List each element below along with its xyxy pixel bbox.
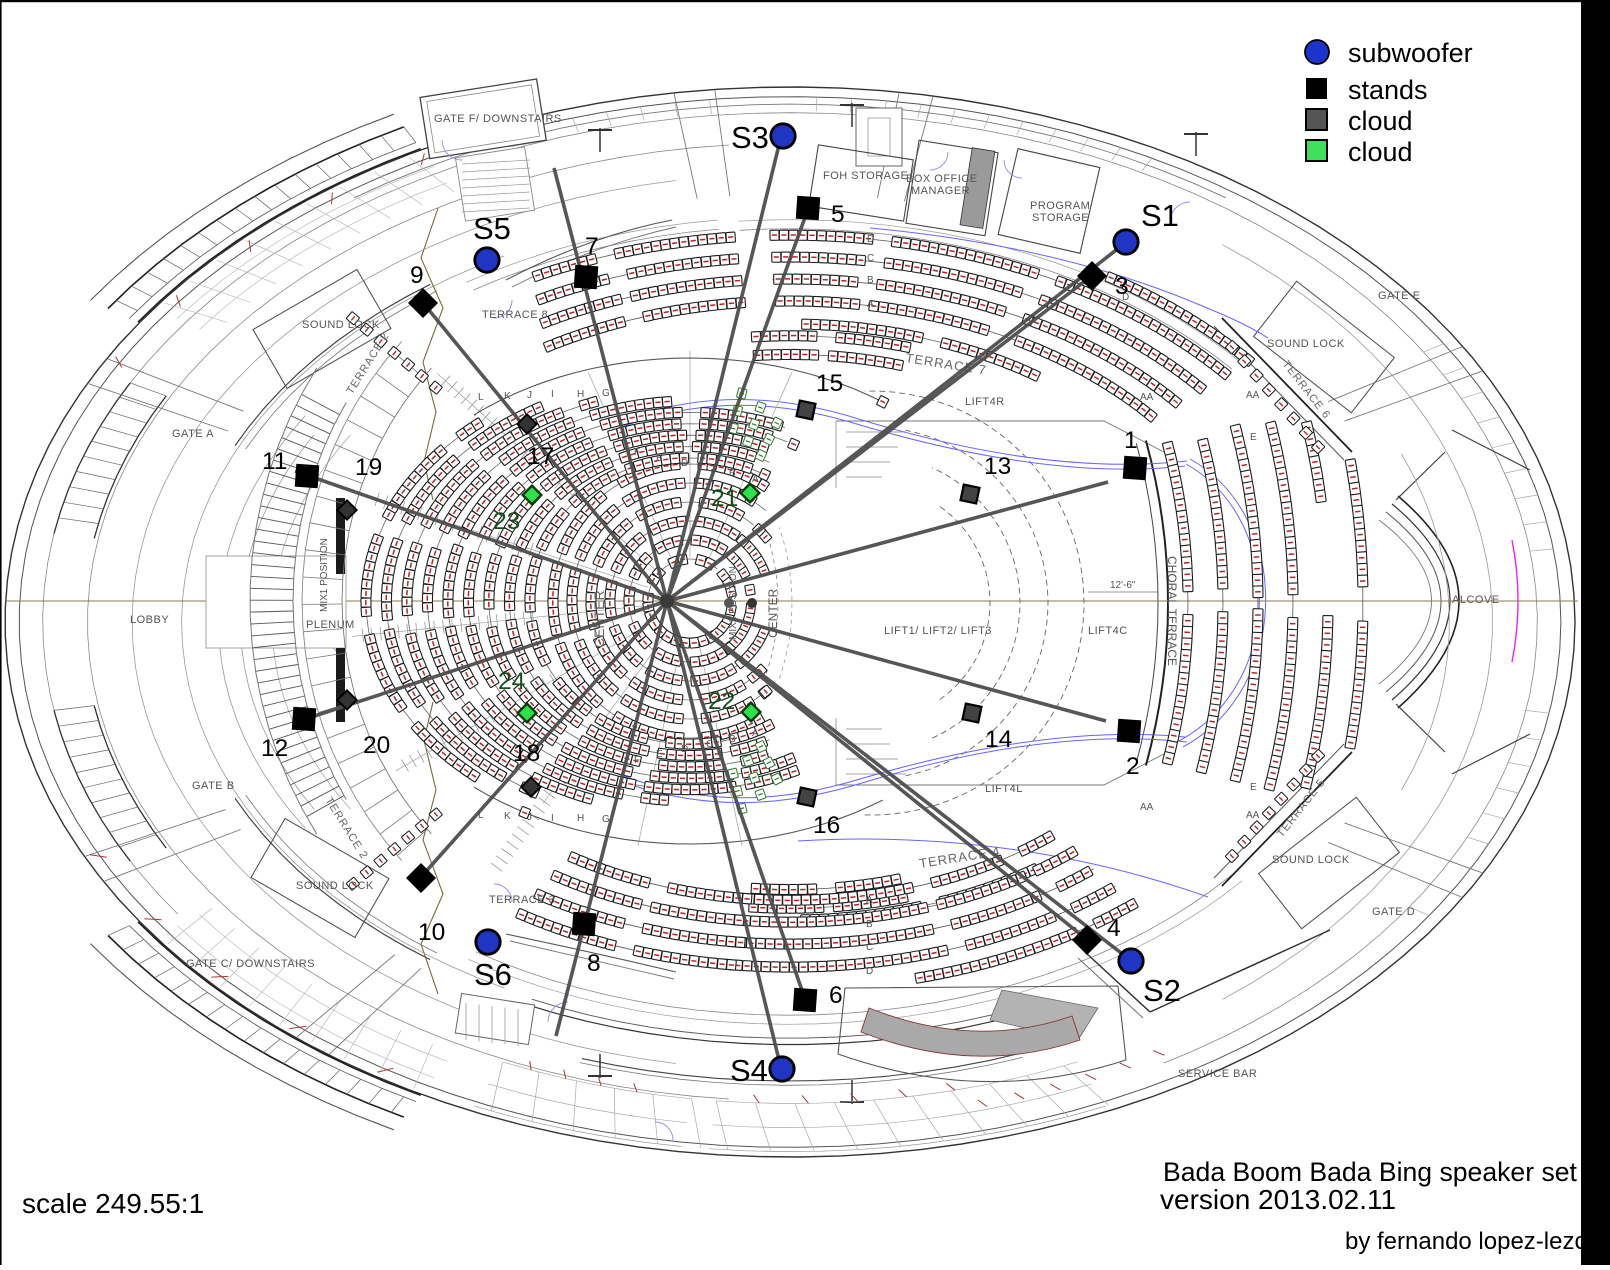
svg-text:10: 10 (418, 919, 445, 946)
svg-text:4: 4 (1107, 915, 1121, 942)
svg-text:C: C (866, 942, 873, 953)
svg-text:S6: S6 (474, 957, 512, 992)
svg-text:SERVICE BAR: SERVICE BAR (1178, 1068, 1257, 1080)
svg-text:G: G (602, 388, 610, 399)
svg-text:GATE C/ DOWNSTAIRS: GATE C/ DOWNSTAIRS (186, 958, 315, 970)
svg-text:S3: S3 (731, 120, 769, 155)
svg-text:version 2013.02.11: version 2013.02.11 (1160, 1184, 1396, 1215)
svg-text:CENTER: CENTER (591, 590, 607, 648)
svg-text:GATE B: GATE B (192, 780, 235, 792)
svg-text:LIFT4R: LIFT4R (965, 396, 1005, 408)
svg-text:13: 13 (984, 453, 1011, 480)
svg-text:TERRACE 8: TERRACE 8 (482, 309, 548, 321)
svg-text:B: B (866, 919, 873, 930)
svg-text:12: 12 (261, 735, 288, 762)
svg-text:D: D (866, 966, 873, 977)
svg-text:F: F (634, 755, 640, 766)
svg-text:24: 24 (498, 668, 525, 695)
svg-text:E: E (656, 749, 663, 760)
svg-text:FOH STORAGE: FOH STORAGE (823, 170, 908, 182)
svg-text:LIFT1/ LIFT2/ LIFT3: LIFT1/ LIFT2/ LIFT3 (884, 625, 992, 637)
svg-text:SOUND LOCK: SOUND LOCK (302, 319, 380, 331)
svg-text:SOUND LOCK: SOUND LOCK (1267, 338, 1345, 350)
svg-text:D: D (681, 458, 688, 469)
svg-text:J: J (527, 812, 532, 823)
svg-text:LIFT4L: LIFT4L (985, 783, 1023, 795)
svg-text:stands: stands (1348, 75, 1428, 105)
svg-text:22: 22 (708, 688, 735, 715)
svg-text:C: C (706, 739, 713, 750)
svg-text:PLENUM: PLENUM (306, 619, 355, 631)
svg-text:A: A (866, 895, 873, 906)
svg-text:18: 18 (513, 740, 540, 767)
svg-text:AA: AA (1140, 802, 1154, 813)
svg-text:J: J (527, 390, 532, 401)
svg-text:Bada Boom Bada Bing speaker se: Bada Boom Bada Bing speaker set (1163, 1157, 1578, 1187)
svg-text:ALCOVE: ALCOVE (1452, 594, 1500, 606)
svg-text:14: 14 (985, 726, 1012, 753)
svg-text:cloud: cloud (1348, 106, 1413, 136)
svg-text:PROGRAM: PROGRAM (1030, 200, 1090, 212)
svg-text:A: A (867, 299, 874, 310)
svg-text:L: L (478, 392, 484, 403)
svg-text:D: D (681, 744, 688, 755)
svg-text:LOBBY: LOBBY (130, 614, 169, 626)
svg-text:2: 2 (1126, 753, 1140, 780)
svg-text:E: E (656, 453, 663, 464)
svg-text:H: H (577, 389, 584, 400)
svg-text:S5: S5 (473, 211, 511, 246)
svg-text:20: 20 (363, 732, 390, 759)
svg-text:S2: S2 (1143, 973, 1181, 1008)
svg-text:AA: AA (1246, 390, 1260, 401)
svg-text:STORAGE: STORAGE (1032, 212, 1089, 224)
svg-text:S1: S1 (1141, 198, 1179, 233)
svg-text:S4: S4 (730, 1053, 768, 1088)
svg-text:5: 5 (831, 201, 845, 228)
svg-text:I: I (551, 813, 554, 824)
svg-text:subwoofer: subwoofer (1348, 38, 1473, 68)
svg-text:15: 15 (816, 370, 843, 397)
svg-text:A: A (752, 728, 759, 739)
svg-text:SOUND LOCK: SOUND LOCK (296, 880, 374, 892)
svg-text:by fernando lopez-lezca: by fernando lopez-lezca (1345, 1228, 1600, 1255)
svg-text:8: 8 (587, 950, 601, 977)
svg-text:GATE E: GATE E (1378, 290, 1421, 302)
svg-text:B: B (729, 734, 736, 745)
svg-text:GATE F/ DOWNSTAIRS: GATE F/ DOWNSTAIRS (434, 113, 562, 125)
svg-text:B: B (867, 275, 874, 286)
svg-text:I: I (551, 389, 554, 400)
svg-text:LIFT4C: LIFT4C (1088, 625, 1128, 637)
svg-text:6: 6 (829, 982, 843, 1009)
svg-text:A: A (752, 474, 759, 485)
svg-text:GATE D: GATE D (1372, 906, 1415, 918)
svg-text:19: 19 (355, 454, 382, 481)
svg-text:E: E (1250, 782, 1257, 793)
svg-text:H: H (577, 813, 584, 824)
svg-text:9: 9 (410, 262, 424, 289)
svg-text:B: B (729, 468, 736, 479)
svg-text:23: 23 (493, 508, 520, 535)
svg-text:12'-6": 12'-6" (1110, 580, 1136, 591)
svg-text:3: 3 (1115, 273, 1129, 300)
svg-text:1: 1 (1124, 427, 1138, 454)
svg-text:21: 21 (711, 485, 738, 512)
svg-text:16: 16 (813, 812, 840, 839)
svg-text:scale 249.55:1: scale 249.55:1 (22, 1188, 204, 1219)
svg-text:MANAGER: MANAGER (911, 185, 970, 197)
svg-text:SOUND LOCK: SOUND LOCK (1272, 854, 1350, 866)
svg-text:AA: AA (1140, 392, 1154, 403)
svg-text:E: E (1250, 432, 1257, 443)
svg-text:K: K (504, 811, 511, 822)
svg-text:7: 7 (585, 233, 599, 260)
svg-text:11: 11 (262, 448, 287, 475)
svg-text:CHORAL TERRACE: CHORAL TERRACE (1165, 556, 1179, 666)
svg-text:17: 17 (527, 443, 554, 470)
svg-text:BOX OFFICE: BOX OFFICE (906, 173, 978, 185)
svg-text:TERRACE 3: TERRACE 3 (489, 894, 555, 906)
svg-text:cloud: cloud (1348, 137, 1413, 167)
svg-text:D: D (867, 234, 874, 245)
svg-text:C: C (867, 253, 874, 264)
svg-text:F: F (634, 447, 640, 458)
svg-text:GATE A: GATE A (172, 428, 214, 440)
svg-text:MIX1 POSITION: MIX1 POSITION (319, 538, 330, 612)
svg-text:AA: AA (1246, 810, 1260, 821)
